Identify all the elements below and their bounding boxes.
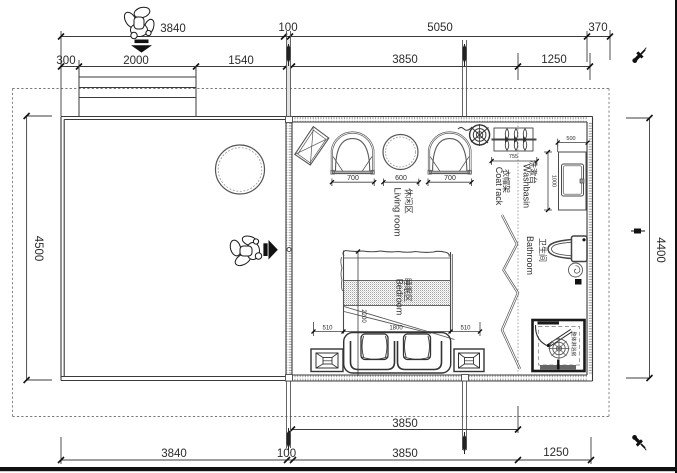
svg-text:Washbasin: Washbasin (522, 164, 532, 208)
svg-text:1000: 1000 (551, 175, 557, 187)
svg-text:1800: 1800 (389, 326, 403, 332)
svg-text:1540: 1540 (228, 55, 254, 67)
svg-text:3840: 3840 (161, 448, 187, 460)
svg-text:300: 300 (56, 55, 75, 67)
svg-text:370: 370 (588, 22, 607, 34)
svg-text:3850: 3850 (392, 448, 418, 460)
svg-text:100: 100 (277, 448, 296, 460)
svg-text:600: 600 (395, 175, 407, 182)
svg-text:3840: 3840 (160, 23, 186, 35)
svg-text:1250: 1250 (543, 447, 569, 459)
svg-text:755: 755 (509, 154, 518, 160)
svg-text:3850: 3850 (392, 54, 418, 66)
svg-text:100: 100 (278, 22, 297, 34)
svg-text:4400: 4400 (654, 237, 666, 263)
svg-text:700: 700 (347, 175, 359, 182)
svg-text:500: 500 (566, 136, 575, 142)
svg-text:整体淋浴房: 整体淋浴房 (570, 331, 577, 356)
svg-text:2200: 2200 (360, 309, 366, 323)
svg-text:510: 510 (322, 326, 333, 332)
svg-text:4500: 4500 (32, 236, 44, 262)
svg-text:Living room: Living room (392, 187, 403, 236)
svg-text:Coat rack: Coat rack (494, 167, 504, 206)
svg-text:700: 700 (444, 175, 456, 182)
svg-text:Bedroom: Bedroom (395, 279, 405, 316)
svg-text:Bathroom: Bathroom (525, 236, 535, 275)
svg-text:3850: 3850 (392, 418, 418, 430)
svg-text:1250: 1250 (541, 54, 567, 66)
svg-text:510: 510 (460, 326, 471, 332)
svg-text:5050: 5050 (427, 22, 453, 34)
svg-text:卫生间: 卫生间 (538, 238, 548, 262)
svg-text:休闲区: 休闲区 (404, 188, 414, 214)
svg-text:2000: 2000 (123, 55, 149, 67)
